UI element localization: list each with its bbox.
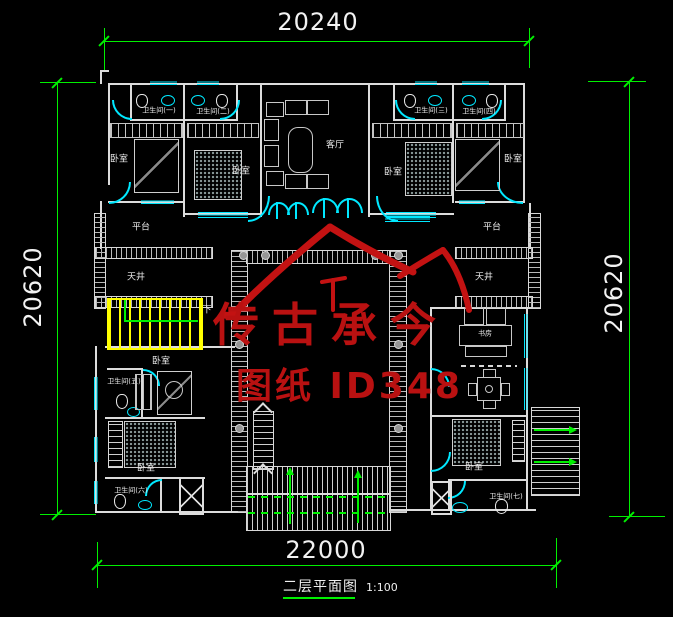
stool: [483, 369, 496, 378]
bed: [405, 142, 452, 196]
toilet: [116, 394, 128, 409]
sofa: [266, 171, 284, 186]
wall: [523, 83, 525, 203]
stair-down-label: 下: [202, 307, 211, 316]
extension-line: [40, 514, 96, 515]
room-label: 天井: [127, 274, 145, 283]
dimension-top: 20240: [277, 10, 358, 34]
window: [462, 80, 489, 85]
wall: [107, 368, 143, 370]
extension-line: [556, 538, 557, 588]
sofa: [285, 174, 307, 189]
room-label: 卫生间(四): [462, 109, 495, 116]
shaft: [431, 481, 452, 515]
external-stair: [531, 407, 580, 496]
room-label: 卧室: [137, 465, 155, 474]
dimension-bottom: 22000: [285, 538, 366, 562]
watermark-sheet-id: 图纸 ID348: [236, 369, 463, 405]
wardrobe: [110, 123, 183, 138]
extension-line: [104, 28, 105, 72]
toilet: [216, 94, 228, 108]
folding-door-leaf: [323, 198, 325, 218]
wall: [183, 83, 185, 217]
arrow-up-icon: [286, 467, 294, 475]
extension-line: [609, 516, 665, 517]
wall: [185, 119, 238, 121]
window: [150, 80, 177, 85]
sofa: [307, 100, 329, 115]
dimension-right: 20620: [602, 252, 626, 333]
window: [524, 314, 529, 358]
bed-decor: [165, 381, 183, 399]
stair-direction-arrow: [357, 477, 359, 523]
room-label: 卧室: [504, 156, 522, 165]
room-label: 卫生间(二): [196, 109, 229, 116]
wall: [100, 70, 109, 72]
room-label: 卫生间(三): [414, 108, 447, 115]
door-arc: [431, 452, 451, 472]
wall: [452, 83, 454, 203]
extension-line: [40, 82, 96, 83]
room-label: 平台: [483, 224, 501, 233]
sink: [462, 95, 476, 106]
wall: [432, 415, 526, 417]
folding-door-arc: [336, 198, 363, 213]
post: [394, 424, 403, 433]
bed: [452, 419, 501, 466]
wall: [504, 83, 506, 121]
wall: [393, 119, 452, 121]
window: [94, 437, 99, 462]
wall: [100, 70, 102, 84]
arrow-up-icon: [354, 470, 362, 478]
sink: [138, 500, 152, 510]
window: [94, 481, 99, 504]
cabinet: [512, 420, 525, 462]
folding-door-arc: [312, 198, 339, 213]
wall: [130, 119, 183, 121]
sofa: [307, 174, 329, 189]
window: [524, 368, 529, 410]
sofa: [266, 102, 284, 117]
dimension-line: [104, 41, 529, 42]
folding-door-arc: [287, 202, 309, 215]
room-label: 卫生间(一): [142, 108, 175, 115]
stair-landing-line: [246, 493, 389, 495]
cabinet: [108, 421, 123, 468]
stair-walk-line: [248, 512, 387, 514]
post: [235, 424, 244, 433]
room-label: 卧室: [232, 168, 250, 177]
dimension-line: [57, 83, 58, 515]
toilet: [486, 94, 498, 108]
drawing-scale: 1:100: [366, 582, 398, 593]
tea-table-center: [485, 385, 493, 393]
stair-direction-arrow: [534, 429, 570, 431]
window: [94, 377, 99, 410]
extension-line: [97, 542, 98, 588]
window: [197, 80, 219, 85]
dimension-left: 20620: [21, 246, 45, 327]
window: [415, 80, 437, 85]
wall: [105, 417, 205, 419]
arrow-right-icon: [569, 426, 577, 434]
drawing-title: 二层平面图: [283, 580, 358, 594]
stool: [501, 383, 510, 396]
sink: [452, 502, 468, 513]
room-label: 平台: [132, 224, 150, 233]
window: [459, 199, 485, 204]
wardrobe: [456, 123, 524, 138]
railing: [95, 247, 213, 259]
sofa: [285, 100, 307, 115]
railing: [94, 213, 106, 309]
wardrobe: [187, 123, 259, 138]
partition-dashed-line: [461, 365, 517, 367]
wall: [95, 511, 238, 513]
dimension-line: [629, 82, 630, 517]
folding-door-leaf: [347, 198, 349, 218]
room-label: 卧室: [384, 169, 402, 178]
sink: [428, 95, 442, 106]
railing: [528, 213, 541, 309]
staircase-highlighted: [107, 298, 203, 350]
stool: [468, 383, 477, 396]
room-label: 书房: [478, 331, 492, 338]
bed: [455, 139, 500, 191]
bed: [134, 139, 179, 193]
toilet: [495, 499, 508, 514]
chair: [486, 307, 506, 325]
desk-base: [465, 346, 507, 357]
wardrobe: [372, 123, 452, 138]
sofa: [264, 119, 279, 141]
stair-walk-line: [124, 300, 126, 322]
stair-direction-arrow: [534, 461, 570, 463]
bed: [124, 421, 176, 468]
stair-walk-line: [124, 320, 198, 322]
room-label: 卧室: [152, 358, 170, 367]
window: [141, 199, 174, 204]
floor-plan-drawing: 20240 22000 20620 20620: [0, 0, 673, 617]
cabinet: [135, 374, 152, 410]
stair-walk-line: [248, 496, 387, 498]
extension-line: [529, 28, 530, 68]
room-label: 卧室: [110, 156, 128, 165]
toilet: [114, 494, 126, 509]
dimension-line: [97, 565, 556, 566]
shaft: [179, 477, 204, 515]
room-label: 卫生间(七): [489, 494, 522, 501]
room-label: 卧室: [465, 464, 483, 473]
door-arc: [112, 100, 132, 120]
sink: [191, 95, 205, 106]
stair-direction-arrow: [289, 474, 291, 524]
extension-line: [588, 81, 646, 82]
arrow-right-icon: [569, 458, 577, 466]
title-underline: [283, 597, 355, 599]
wall: [368, 83, 370, 217]
sofa: [264, 145, 279, 167]
stool: [483, 400, 496, 409]
wall: [454, 119, 504, 121]
sink: [161, 95, 175, 106]
watermark-brand-text: 传古承今: [213, 302, 449, 348]
coffee-table: [288, 127, 313, 173]
room-label: 客厅: [326, 142, 344, 151]
